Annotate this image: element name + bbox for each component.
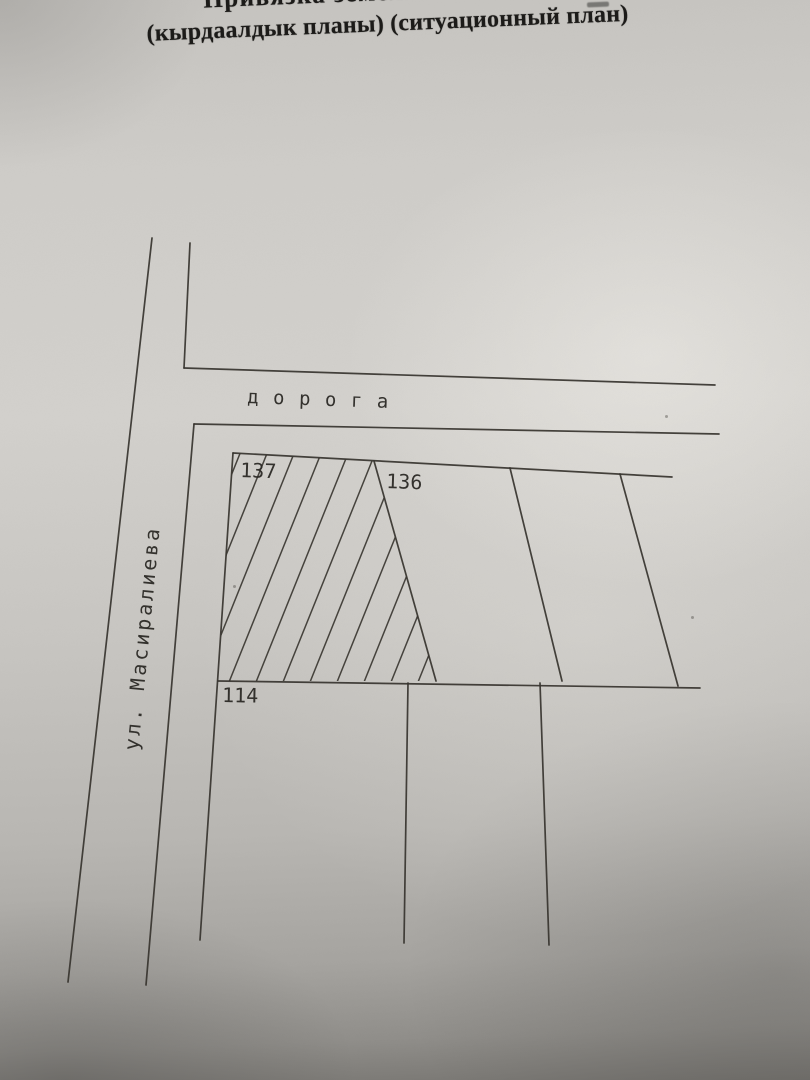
plot-divider-right: [620, 474, 678, 686]
plot-number-137: 137: [240, 458, 277, 483]
hatch-line: [221, 451, 322, 702]
hatch-line: [410, 451, 511, 702]
plots-block: [200, 453, 700, 940]
plot-number-114: 114: [222, 683, 259, 708]
lower-divider-right: [540, 683, 549, 945]
plot-number-136: 136: [386, 469, 423, 494]
road-label: дорога: [247, 386, 403, 413]
hatch-line: [437, 451, 538, 702]
plan-labels: дорога ул. Масиралиева 137 136 114: [119, 386, 423, 751]
block-bottom-boundary: [218, 681, 700, 688]
plot-137-hatching: [140, 451, 538, 702]
document-photo: Привязка земель (кырдаалдык планы) (ситу…: [0, 0, 810, 1080]
lower-plot-boundaries: [404, 683, 549, 945]
road-edge-bottom: [194, 424, 719, 434]
site-plan-drawing: дорога ул. Масиралиева 137 136 114: [0, 0, 810, 1080]
street-lines: [68, 238, 194, 985]
block-top-boundary: [233, 453, 672, 477]
hatch-line: [275, 451, 376, 702]
street-label: ул. Масиралиева: [119, 525, 165, 752]
road-edge-top: [184, 368, 715, 385]
paper-speck: [233, 585, 236, 588]
hatch-line: [194, 451, 295, 702]
street-corner-connector: [184, 243, 190, 368]
paper-speck: [691, 616, 694, 619]
plot-136-right-edge: [510, 468, 562, 681]
hatch-line: [167, 451, 268, 702]
lower-divider-left: [404, 683, 408, 943]
hatch-line: [248, 451, 349, 702]
paper-speck: [665, 415, 668, 418]
street-edge-right: [146, 424, 194, 985]
